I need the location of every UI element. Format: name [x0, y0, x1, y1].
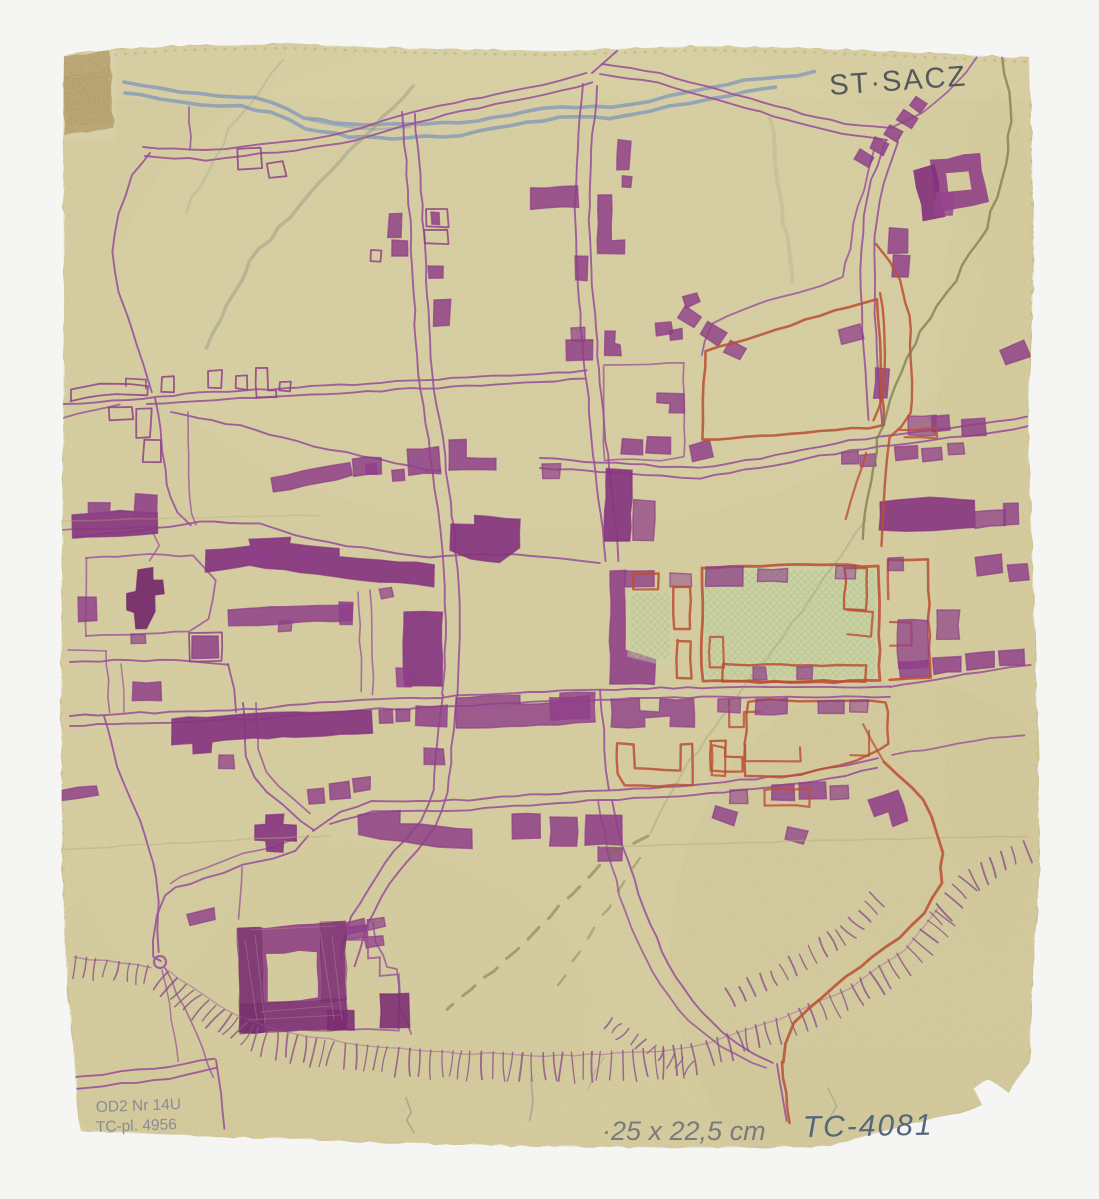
svg-text:TC-4081: TC-4081: [802, 1109, 933, 1144]
svg-text:OD2 Nr 14U: OD2 Nr 14U: [96, 1096, 182, 1116]
svg-text:·25 x 22,5 cm: ·25 x 22,5 cm: [602, 1116, 766, 1146]
svg-text:TC-pl. 4956: TC-pl. 4956: [96, 1116, 178, 1136]
